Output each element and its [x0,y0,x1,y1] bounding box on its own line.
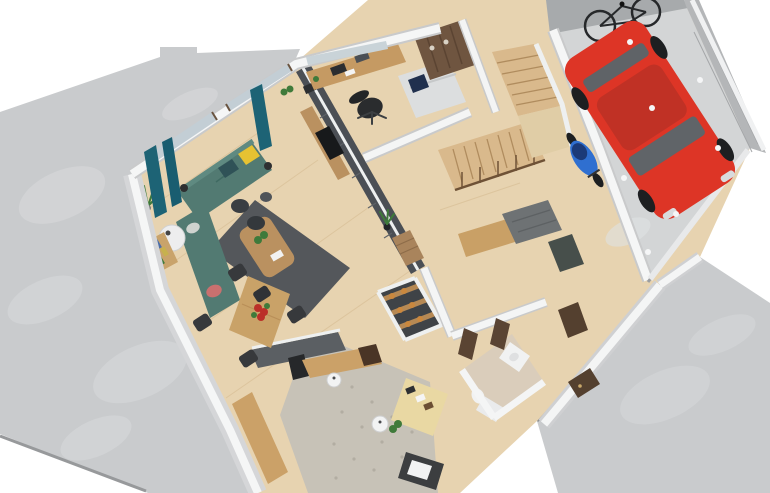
dining-flowers-red [257,313,265,321]
kitchen-tile-pattern [332,442,335,445]
front-door-handle [578,384,582,388]
decor-frames [430,46,435,51]
shelf-plant [287,86,294,93]
pantry-food-items [405,321,411,327]
garage-wall-lights [673,211,679,217]
sofa-side-object [264,162,272,170]
garage-wall-lights [627,39,633,45]
bicycle-seat [620,2,625,7]
kitchen-tile-pattern [334,476,337,479]
pendant-lamp-bulb [333,377,336,380]
dining-flowers-green [251,312,257,318]
kitchen-tile-pattern [370,400,373,403]
garage-wall-lights [649,105,655,111]
decor-frames [444,40,449,45]
coffee-table-plant [260,231,268,239]
shelf-plant [281,89,288,96]
desk-plant [313,76,319,82]
dining-flowers-green [264,303,270,309]
floor-plan-svg [0,0,770,493]
garage-wall-lights [715,145,721,151]
island-plant [389,425,397,433]
pendant-lamp [327,373,341,387]
sofa-side-object [180,184,188,192]
pantry-food-items [397,307,403,313]
pantry-food-items [417,316,423,322]
kitchen-tile-pattern [380,440,383,443]
pantry-food-items [401,288,407,294]
pantry-food-items [389,293,395,299]
garage-wall-lights [621,175,627,181]
garage-wall-lights [645,249,651,255]
floor-plan-render [0,0,770,493]
pouf [247,216,265,230]
kitchen-tile-pattern [400,455,403,458]
pendant-lamp [372,416,388,432]
pouf [260,192,272,202]
pantry-food-items [409,302,415,308]
kitchen-tile-pattern [350,385,353,388]
kitchen-tile-pattern [410,430,413,433]
side-table-item [166,231,171,236]
pouf [231,199,249,213]
pendant-lamp-bulb [379,421,382,424]
kitchen-tile-pattern [360,425,363,428]
kitchen-tile-pattern [372,468,375,471]
kitchen-tile-pattern [352,457,355,460]
kitchen-tile-pattern [340,410,343,413]
garage-wall-lights [697,77,703,83]
floor-plan-figure [0,0,770,493]
